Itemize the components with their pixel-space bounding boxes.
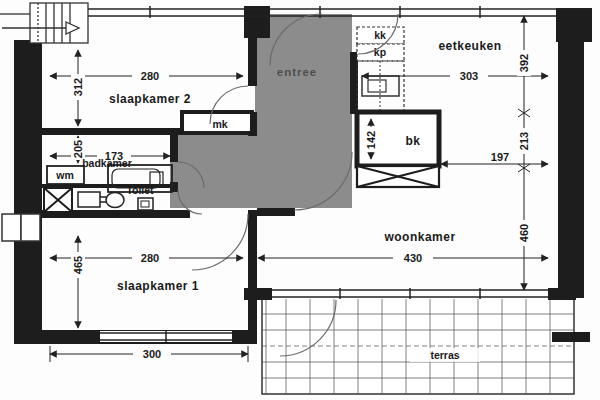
dim-slaapkamer1-window: 300 xyxy=(143,348,161,360)
dim-slaapkamer1-depth: 465 xyxy=(72,256,84,274)
wall-left xyxy=(14,40,42,344)
wall-top-junction xyxy=(244,6,270,38)
washer-label: wm xyxy=(55,169,74,181)
floor-plan-page: mk wm kk kp bk xyxy=(0,0,600,400)
room-label-woonkamer: woonkamer xyxy=(383,230,455,244)
dim-woonkamer-width: 430 xyxy=(404,252,422,264)
room-label-badkamer: badkamer xyxy=(82,157,132,169)
closet-bk-label: bk xyxy=(405,134,420,148)
wall-badkamer-top xyxy=(42,128,182,135)
dim-passage-width: 197 xyxy=(491,151,509,163)
dim-badkamer-depth: 205 xyxy=(72,140,84,158)
wall-woonkamer-bottom-right xyxy=(548,288,576,300)
wall-protrusion xyxy=(2,214,40,241)
wall-woonkamer-bottom-left xyxy=(244,288,272,300)
wall-right xyxy=(558,8,584,298)
dim-slaapkamer2-depth: 312 xyxy=(72,78,84,96)
dim-slaapkamer2-width: 280 xyxy=(141,70,159,82)
room-label-entree: entree xyxy=(277,66,318,78)
room-label-eetkeuken: eetkeuken xyxy=(438,39,501,53)
room-label-toilet: Toilet xyxy=(126,184,154,196)
wall-terras-right-block xyxy=(552,332,590,342)
floor-plan-drawing: mk wm kk kp bk xyxy=(0,0,600,400)
terras-area xyxy=(262,298,574,394)
dim-slaapkamer1-width: 280 xyxy=(141,252,159,264)
room-label-terras: terras xyxy=(430,349,459,361)
dim-bk-depth: 142 xyxy=(365,131,377,149)
dim-eetkeuken-width: 303 xyxy=(460,70,478,82)
wall-badkamer-right-a xyxy=(170,128,178,162)
closet-mk: mk xyxy=(182,112,252,133)
closet-mk-label: mk xyxy=(212,118,227,130)
cabinet-kk-label: kk xyxy=(374,29,386,41)
wall-entree-bottom-stub xyxy=(257,208,295,216)
wall-sk2-right-a xyxy=(248,36,257,86)
room-label-slaapkamer2: slaapkamer 2 xyxy=(109,92,191,106)
dim-woonkamer-depth: 460 xyxy=(518,224,530,242)
dim-passage-depth: 213 xyxy=(518,132,530,150)
shaft-box xyxy=(44,188,72,212)
shaft-box-kitchen xyxy=(357,166,439,187)
dim-eetkeuken-depth: 392 xyxy=(518,54,530,72)
wall-sk1-right xyxy=(248,210,257,344)
washer-wm: wm xyxy=(47,166,84,184)
room-label-slaapkamer1: slaapkamer 1 xyxy=(117,279,199,293)
